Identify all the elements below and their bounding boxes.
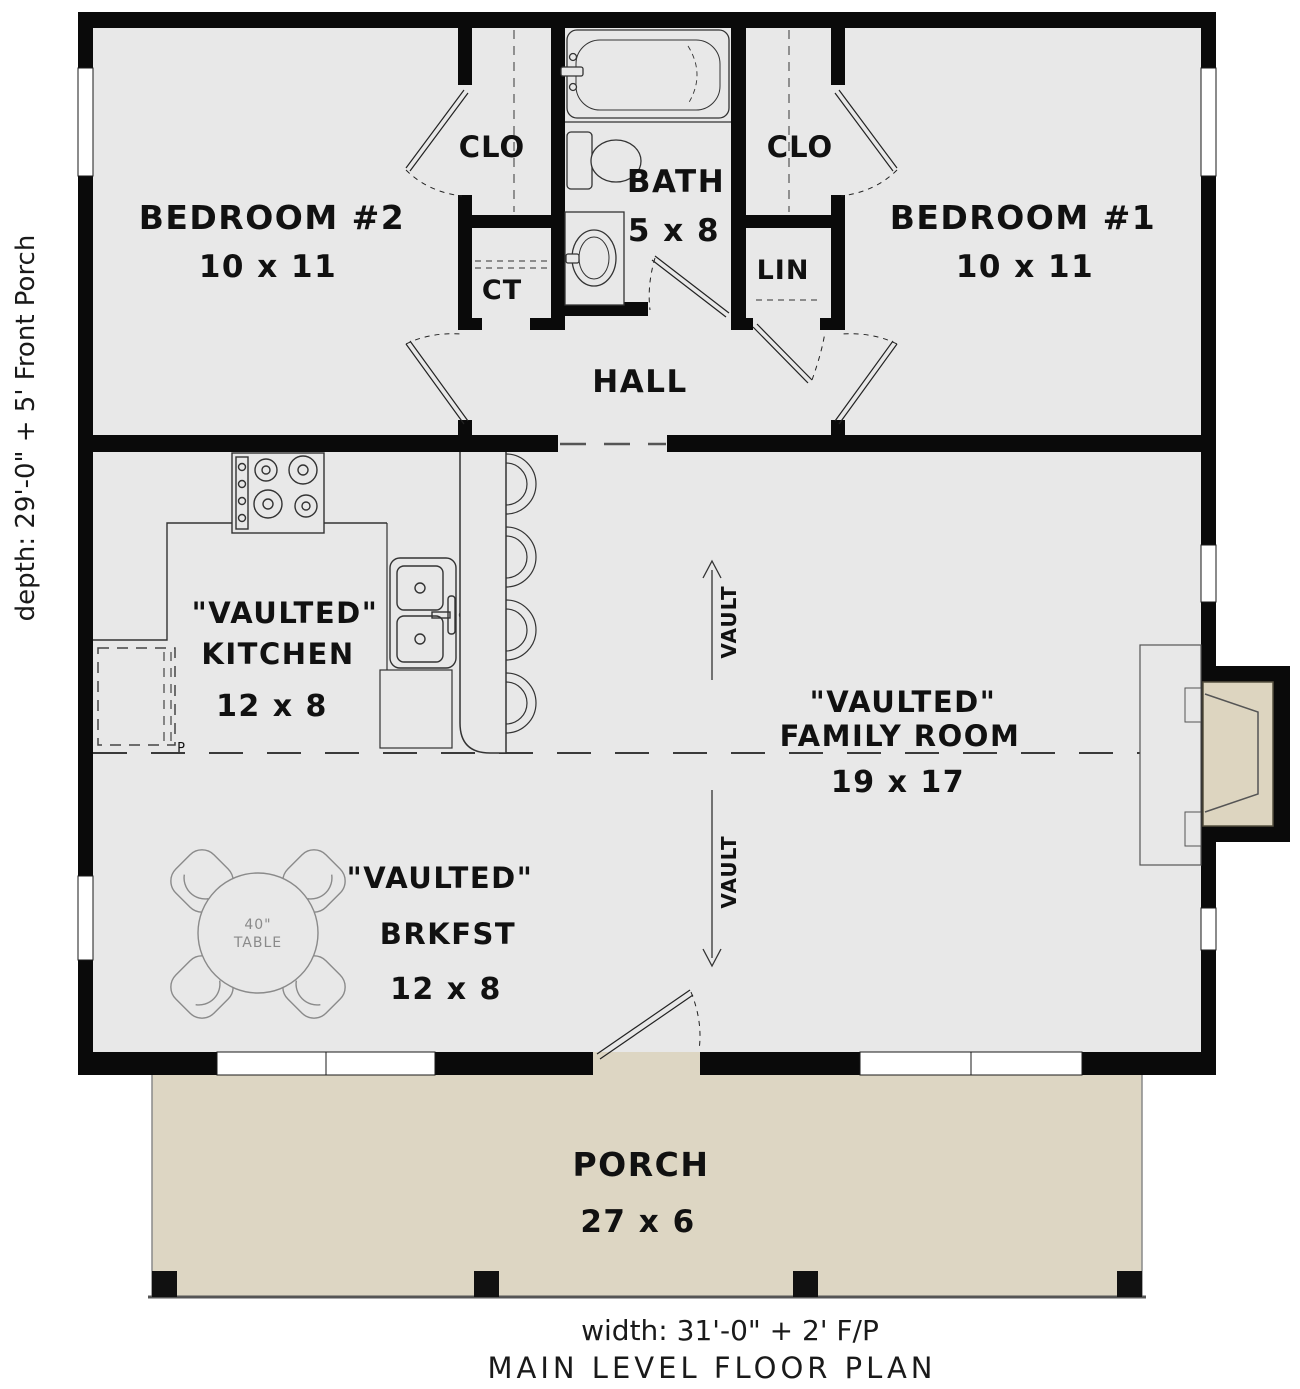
floor-plan-page: BEDROOM #2 10 x 11 BEDROOM #1 10 x 11 CL… — [0, 0, 1300, 1389]
label-table-size: 40" — [244, 917, 271, 933]
wall-hall-left-c — [458, 420, 472, 452]
porch-post — [793, 1271, 818, 1297]
plan-title: MAIN LEVEL FLOOR PLAN — [487, 1351, 936, 1385]
porch-post — [152, 1271, 177, 1297]
window-family-lower — [1201, 908, 1216, 950]
wall-ct-bottom-left — [458, 318, 482, 330]
wall-lin-bottom-right — [820, 318, 845, 330]
label-kitchen-dims: 12 x 8 — [216, 689, 328, 724]
porch-post — [1117, 1271, 1142, 1297]
label-linen: LIN — [757, 255, 810, 286]
toilet-tank — [567, 132, 592, 189]
wall-ct-bottom-right — [530, 318, 565, 330]
label-closet-left: CLO — [459, 130, 525, 164]
window-breakfast — [78, 876, 93, 960]
label-porch: PORCH — [573, 1145, 710, 1184]
window-bedroom2 — [78, 68, 93, 176]
window-family-upper — [1201, 545, 1216, 602]
floor-plan-drawing: BEDROOM #2 10 x 11 BEDROOM #1 10 x 11 CL… — [0, 0, 1300, 1389]
label-porch-dims: 27 x 6 — [580, 1204, 695, 1240]
wall-divider-right — [667, 435, 1201, 452]
window-bedroom1 — [1201, 68, 1216, 176]
annotation-width: width: 31'-0" + 2' F/P — [581, 1314, 879, 1347]
kitchen-sink — [390, 558, 467, 668]
wall-lin-top — [731, 215, 845, 228]
label-bath: BATH — [627, 164, 725, 200]
label-bedroom1: BEDROOM #1 — [890, 198, 1157, 237]
label-bedroom2-dims: 10 x 11 — [199, 249, 337, 285]
label-ct: CT — [482, 275, 522, 306]
label-family: FAMILY ROOM — [780, 719, 1021, 753]
stove — [232, 453, 324, 533]
label-vault-lower: VAULT — [717, 835, 741, 908]
label-pantry: P — [177, 741, 185, 756]
label-hall: HALL — [592, 364, 687, 400]
porch-floor — [152, 1075, 1142, 1297]
vanity-faucet — [566, 254, 579, 263]
wall-bath-right — [731, 28, 746, 330]
wall-hall-right-a — [831, 28, 845, 85]
label-vault-upper: VAULT — [717, 585, 741, 658]
island-bar — [460, 452, 506, 753]
wall-hall-left-a — [458, 28, 472, 85]
tub-faucet — [561, 67, 583, 76]
porch-post — [474, 1271, 499, 1297]
label-table: TABLE — [233, 935, 282, 951]
fireplace — [1140, 645, 1290, 865]
wall-hall-right-c — [831, 420, 845, 452]
mantel-leg-bottom — [1185, 812, 1201, 846]
tub — [567, 30, 729, 118]
wall-divider-left — [93, 435, 558, 452]
wall-exterior-top — [78, 12, 1216, 28]
annotation-depth: depth: 29'-0" + 5' Front Porch — [11, 235, 41, 622]
wall-ct-top — [458, 215, 565, 228]
label-kitchen: KITCHEN — [201, 637, 354, 671]
round-table — [198, 873, 318, 993]
mantel-leg-top — [1185, 688, 1201, 722]
label-bedroom1-dims: 10 x 11 — [956, 249, 1094, 285]
label-breakfast-prefix: "VAULTED" — [347, 861, 534, 895]
label-family-prefix: "VAULTED" — [810, 685, 997, 719]
wall-lin-bottom-left — [731, 318, 753, 330]
label-breakfast-dims: 12 x 8 — [390, 972, 502, 1007]
label-family-dims: 19 x 17 — [831, 765, 965, 800]
label-breakfast: BRKFST — [380, 917, 516, 951]
label-bath-dims: 5 x 8 — [628, 213, 720, 249]
label-kitchen-prefix: "VAULTED" — [192, 596, 379, 630]
label-closet-right: CLO — [767, 130, 833, 164]
label-bedroom2: BEDROOM #2 — [139, 198, 406, 237]
front-door-opening — [593, 1052, 700, 1075]
firebox — [1203, 682, 1273, 826]
